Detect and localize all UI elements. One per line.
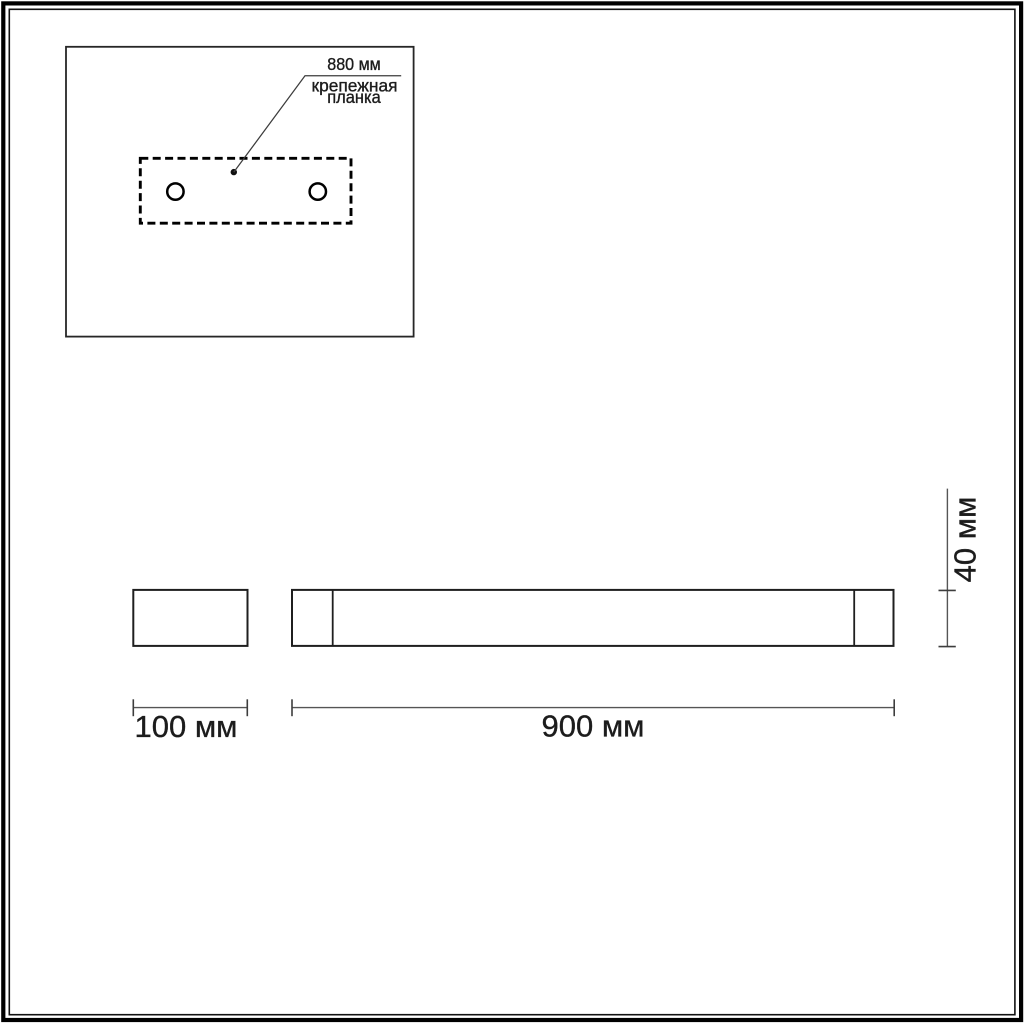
svg-text:планка: планка bbox=[327, 87, 381, 107]
svg-text:100 мм: 100 мм bbox=[135, 709, 238, 744]
svg-text:900 мм: 900 мм bbox=[542, 709, 645, 744]
svg-text:880 мм: 880 мм bbox=[327, 54, 381, 74]
svg-text:40 мм: 40 мм bbox=[948, 497, 983, 583]
